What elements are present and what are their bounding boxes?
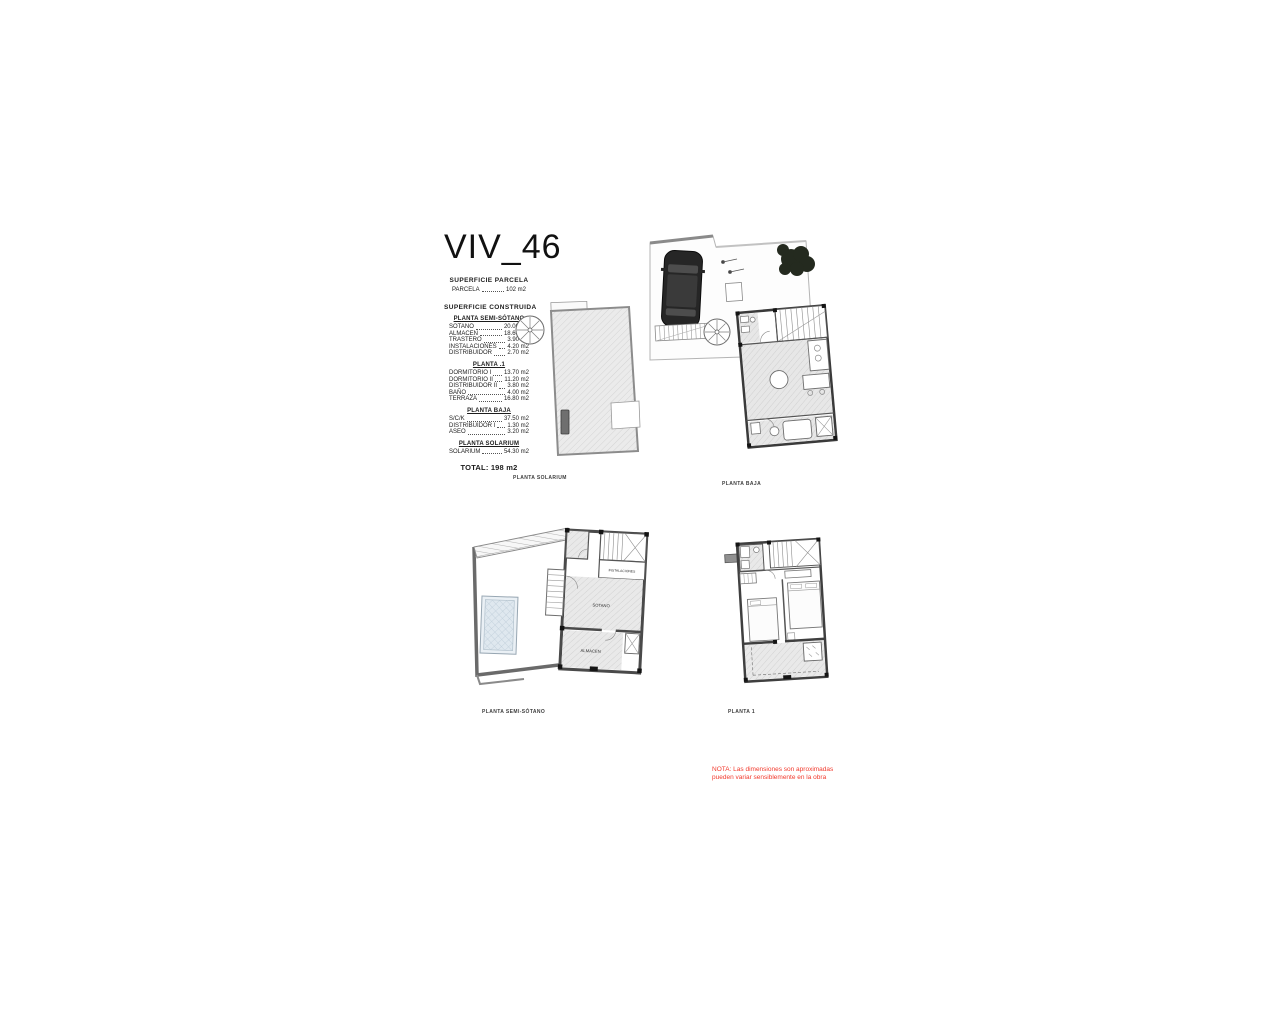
row-label: TRASTERO xyxy=(449,337,482,344)
row-label: BAÑO xyxy=(449,390,466,397)
plan-planta1-drawing xyxy=(706,526,854,694)
parcel-value: 102 m2 xyxy=(506,287,526,293)
stairs xyxy=(599,532,646,562)
terrace-shower xyxy=(803,642,822,661)
row-label: ASEO xyxy=(449,429,466,436)
caption-semisotano: PLANTA SEMI-SÓTANO xyxy=(482,709,545,715)
deck-notch xyxy=(611,401,640,429)
row-label: DORMITORIO II xyxy=(449,377,493,384)
leader-dots xyxy=(482,291,504,292)
note-line1: NOTA: Las dimensiones son aproximadas xyxy=(712,766,852,774)
ramp xyxy=(474,528,571,558)
pool xyxy=(480,596,518,654)
stairs xyxy=(775,305,828,341)
row-label: TERRAZA xyxy=(449,396,477,403)
shower xyxy=(815,416,833,436)
entry-stair-flight xyxy=(546,569,565,616)
instalaciones-room: INSTALACIONES xyxy=(599,560,646,580)
yard-parapet xyxy=(477,675,524,684)
sotano-room: SOTANO xyxy=(563,576,643,632)
car-icon xyxy=(658,250,706,328)
first-floor-building xyxy=(724,537,829,682)
entry-landing xyxy=(725,282,742,301)
spiral-stair-icon xyxy=(516,316,544,344)
plan-planta1-svg xyxy=(706,526,854,694)
caption-planta1: PLANTA 1 xyxy=(728,709,755,715)
kitchen-counter xyxy=(808,339,830,371)
parcel-area-block: SUPERFICIE PARCELA PARCELA 102 m2 xyxy=(448,277,530,293)
spiral-stair-icon xyxy=(704,319,730,345)
note: NOTA: Las dimensiones son aproximadas pu… xyxy=(712,766,852,782)
trastero-room xyxy=(566,530,589,559)
row-label: SOLARIUM xyxy=(449,449,480,456)
row-label: S/C/K xyxy=(449,416,465,423)
shower xyxy=(625,633,640,654)
row-label: ALMACEN xyxy=(449,331,478,338)
plan-sheet: VIV_46 SUPERFICIE PARCELA PARCELA 102 m2… xyxy=(0,0,1280,1024)
caption-baja: PLANTA BAJA xyxy=(722,481,761,487)
row-label: DISTRIBUIDOR xyxy=(449,350,492,357)
page-title: VIV_46 xyxy=(444,228,562,267)
room-label: ALMACEN xyxy=(580,648,600,654)
parcel-label: PARCELA xyxy=(452,287,480,293)
basement-building: INSTALACIONES SOTANO ALMACEN xyxy=(543,527,649,673)
plan-baja-svg xyxy=(641,226,846,468)
caption-solarium: PLANTA SOLARIUM xyxy=(513,475,567,481)
parcel-heading: SUPERFICIE PARCELA xyxy=(448,277,530,284)
note-line2: pueden variar sensiblemente en la obra xyxy=(712,774,852,782)
plan-semisotano-drawing: INSTALACIONES SOTANO ALMACEN xyxy=(458,512,686,702)
row-label: DORMITORIO I xyxy=(449,370,491,377)
plan-semisotano-svg: INSTALACIONES SOTANO ALMACEN xyxy=(458,512,686,702)
row-label: SOTANO xyxy=(449,324,474,331)
bench xyxy=(561,410,569,434)
terrace xyxy=(743,639,827,680)
house-ground-floor xyxy=(735,304,837,448)
room-label: SOTANO xyxy=(592,602,610,608)
bathroom xyxy=(739,544,765,571)
plan-baja-drawing xyxy=(641,226,846,468)
stairs xyxy=(769,539,820,568)
balcony-stub xyxy=(725,554,738,563)
parcel-row: PARCELA 102 m2 xyxy=(448,287,530,293)
tree-icon xyxy=(777,244,815,276)
plan-solarium-svg xyxy=(488,296,660,468)
plan-solarium-drawing xyxy=(488,296,660,468)
